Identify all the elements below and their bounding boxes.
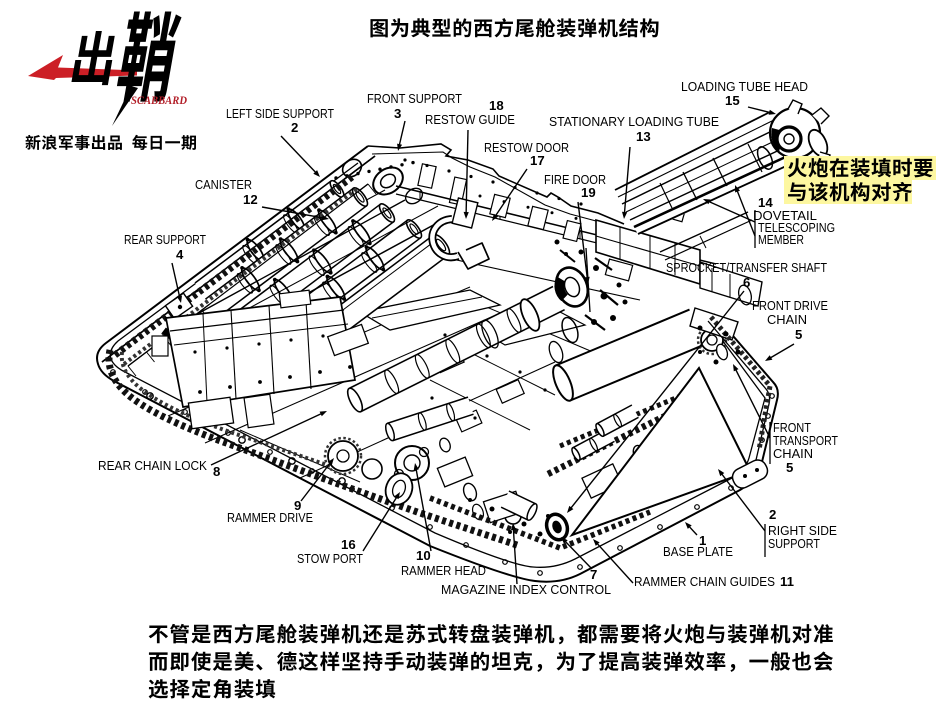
svg-text:RESTOW DOOR: RESTOW DOOR (484, 140, 569, 155)
svg-text:1: 1 (699, 533, 706, 548)
svg-text:SCABBARD: SCABBARD (131, 93, 187, 107)
svg-text:2: 2 (769, 507, 776, 522)
svg-text:CHAIN: CHAIN (773, 446, 813, 461)
svg-text:11: 11 (780, 574, 794, 589)
svg-text:MAGAZINE INDEX CONTROL: MAGAZINE INDEX CONTROL (441, 582, 611, 597)
svg-text:5: 5 (795, 327, 802, 342)
svg-text:7: 7 (590, 567, 597, 582)
svg-text:5: 5 (786, 460, 793, 475)
svg-text:REAR SUPPORT: REAR SUPPORT (124, 232, 206, 247)
svg-text:SPROCKET/TRANSFER SHAFT: SPROCKET/TRANSFER SHAFT (666, 260, 827, 275)
svg-text:15: 15 (725, 93, 740, 108)
svg-text:9: 9 (294, 498, 301, 513)
svg-text:SUPPORT: SUPPORT (768, 536, 820, 551)
svg-text:RAMMER CHAIN GUIDES: RAMMER CHAIN GUIDES (634, 574, 775, 589)
svg-text:6: 6 (743, 275, 750, 290)
svg-text:FRONT SUPPORT: FRONT SUPPORT (367, 91, 462, 106)
svg-text:FRONT DRIVE: FRONT DRIVE (752, 298, 828, 313)
svg-text:RESTOW GUIDE: RESTOW GUIDE (425, 112, 515, 127)
svg-text:17: 17 (530, 153, 545, 168)
svg-text:LEFT SIDE SUPPORT: LEFT SIDE SUPPORT (226, 106, 334, 121)
svg-text:STATIONARY LOADING TUBE: STATIONARY LOADING TUBE (549, 114, 719, 129)
svg-text:10: 10 (416, 548, 431, 563)
svg-text:13: 13 (636, 129, 651, 144)
svg-text:REAR CHAIN LOCK: REAR CHAIN LOCK (98, 458, 207, 473)
svg-text:19: 19 (581, 185, 596, 200)
svg-text:LOADING TUBE HEAD: LOADING TUBE HEAD (681, 79, 808, 94)
svg-text:FIRE DOOR: FIRE DOOR (544, 172, 606, 187)
svg-text:CHAIN: CHAIN (767, 312, 807, 327)
svg-text:4: 4 (176, 247, 184, 262)
svg-text:MEMBER: MEMBER (758, 232, 804, 247)
svg-text:3: 3 (394, 106, 401, 121)
svg-text:16: 16 (341, 537, 356, 552)
svg-text:STOW PORT: STOW PORT (297, 551, 363, 566)
svg-text:2: 2 (291, 120, 298, 135)
svg-text:8: 8 (213, 464, 220, 479)
svg-text:CANISTER: CANISTER (195, 177, 252, 192)
svg-text:12: 12 (243, 192, 258, 207)
svg-text:RAMMER HEAD: RAMMER HEAD (401, 563, 486, 578)
svg-text:18: 18 (489, 98, 504, 113)
